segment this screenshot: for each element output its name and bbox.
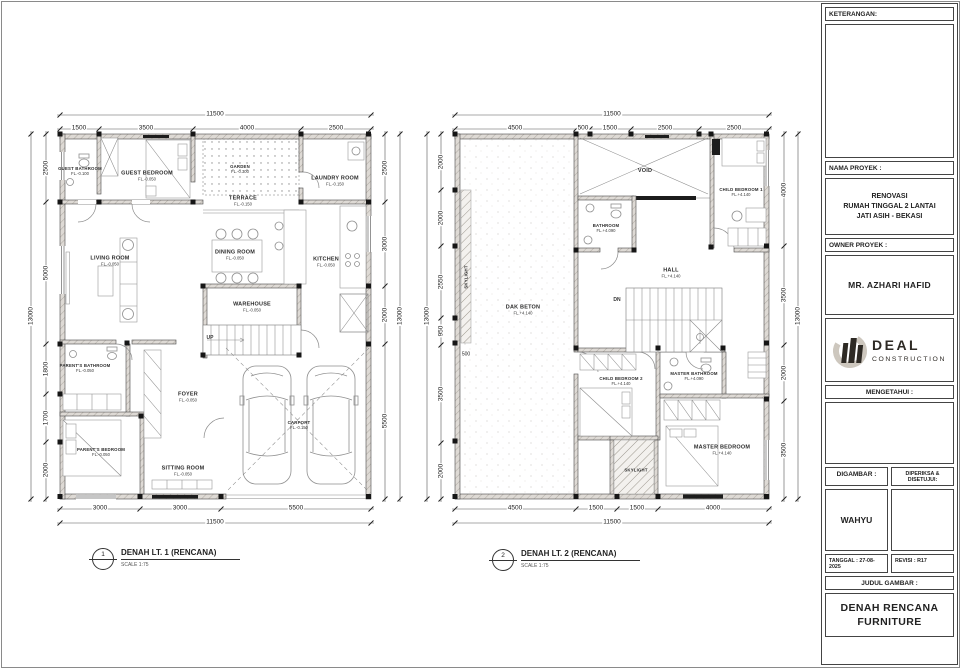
f2-dim-right-1: 3500 (781, 287, 788, 303)
room-carport: CARPORTFL.-0.150 (288, 420, 311, 430)
judul-line-1: DENAH RENCANA (841, 601, 939, 615)
f1-dim-bottom-2: 5500 (288, 505, 304, 512)
f2-dim-top-4: 2500 (726, 125, 742, 132)
floor2-caption: 2 DENAH LT. 2 (RENCANA) SCALE 1:75 (492, 549, 640, 571)
f2-dim-bottom-3: 4000 (705, 505, 721, 512)
project-line-2: RUMAH TINGGAL 2 LANTAI (843, 202, 935, 212)
garden-texture (203, 139, 299, 195)
floor1-caption-title: DENAH LT. 1 (RENCANA) (121, 548, 240, 560)
room-master-bathroom: MASTER BATHROOMFL.+4.090 (670, 371, 717, 381)
f2-dim-left-0: 2000 (438, 154, 445, 170)
f1-dim-right-2: 2000 (382, 307, 389, 323)
f2-dim-bottom-total: 11500 (602, 519, 622, 526)
f2-dim-left-4: 3500 (438, 386, 445, 402)
judul-gambar-header: JUDUL GAMBAR : (825, 576, 954, 590)
room-guest-bedroom: GUEST BEDROOMFL.-0.050 (121, 171, 173, 182)
mengetahui-box (825, 402, 954, 464)
room-parents-bathroom: PARENT'S BATHROOMFL.-0.050 (60, 363, 111, 373)
room-void: VOID (638, 168, 652, 174)
drawing-sheet: 11500 1500 3500 4000 2500 13000 2500 500… (0, 0, 961, 669)
titleblock: KETERANGAN: NAMA PROYEK : RENOVASI RUMAH… (821, 3, 958, 665)
f2-dim-left-3: 950 (438, 325, 445, 338)
f2-dim-top-2: 1500 (602, 125, 618, 132)
revisi-cell: REVISI : R17 (891, 554, 954, 573)
keterangan-header: KETERANGAN: (825, 7, 954, 21)
f2-dim-inset: 500 (461, 352, 471, 359)
f2-dim-right-total: 13000 (795, 306, 802, 326)
owner-box: MR. AZHARI HAFID (825, 255, 954, 315)
room-dining: DINING ROOMFL.-0.050 (215, 250, 255, 261)
f1-dim-bottom-0: 3000 (92, 505, 108, 512)
room-kitchen: KITCHENFL.-0.050 (313, 257, 339, 268)
floor2-void (580, 138, 708, 194)
floor2-plan (425, 113, 801, 526)
f2-dim-bottom-1: 1500 (588, 505, 604, 512)
f1-dim-left-2: 1800 (43, 361, 50, 377)
diperiksa-box (891, 489, 954, 551)
f1-dim-top-0: 1500 (71, 125, 87, 132)
room-skylight-strip: SKYLIGHT (464, 265, 469, 288)
floor2-stairs (626, 288, 722, 352)
owner-name: MR. AZHARI HAFID (848, 280, 931, 290)
room-child-bedroom-1: CHILD BEDROOM 1FL.+4.140 (719, 187, 762, 197)
floor1-caption-scale: SCALE 1:75 (121, 562, 240, 568)
project-line-1: RENOVASI (871, 192, 907, 202)
f2-dim-top-1: 500 (577, 125, 590, 132)
diperiksa-header: DIPERIKSA & DISETUJUI: (891, 467, 954, 486)
floor1-caption: 1 DENAH LT. 1 (RENCANA) SCALE 1:75 (92, 548, 240, 570)
owner-header: OWNER PROYEK : (825, 238, 954, 252)
judul-gambar-box: DENAH RENCANA FURNITURE (825, 593, 954, 637)
f2-dim-right-3: 3500 (781, 442, 788, 458)
logo-box: DEAL CONSTRUCTION (825, 318, 954, 382)
digambar-value: WAHYU (841, 515, 873, 525)
room-master-bedroom: MASTER BEDROOMFL.+4.140 (694, 445, 750, 456)
tanggal-cell: TANGGAL : 27-08-2025 (825, 554, 888, 573)
f2-dim-right-0: 4000 (781, 182, 788, 198)
f1-dim-top-2: 4000 (239, 125, 255, 132)
project-line-3: JATI ASIH - BEKASI (857, 212, 923, 222)
room-bathroom: BATHROOMFL.+4.090 (593, 223, 620, 233)
f1-dim-right-total: 13000 (397, 306, 404, 326)
project-name-box: RENOVASI RUMAH TINGGAL 2 LANTAI JATI ASI… (825, 178, 954, 235)
f1-dim-right-3: 5500 (382, 413, 389, 429)
room-laundry: LAUNDRY ROOMFL.-0.150 (311, 176, 359, 187)
f1-dim-top-1: 3500 (138, 125, 154, 132)
floor2-caption-scale: SCALE 1:75 (521, 563, 640, 569)
f1-dim-right-0: 2500 (382, 160, 389, 176)
f2-dim-left-total: 13000 (424, 306, 431, 326)
f1-dim-top-3: 2500 (328, 125, 344, 132)
room-warehouse: WAREHOUSEFL.-0.050 (233, 302, 271, 313)
room-parents-bedroom: PARENT'S BEDROOMFL.-0.050 (77, 447, 125, 457)
room-foyer: FOYERFL.-0.050 (178, 392, 198, 403)
f1-dim-bottom-1: 3000 (172, 505, 188, 512)
deal-construction-logo: DEAL CONSTRUCTION (828, 327, 952, 373)
car-1 (240, 366, 294, 484)
room-garden: GARDENFL.-0.300 (230, 164, 250, 174)
f1-dim-left-1: 5000 (43, 265, 50, 281)
keterangan-box (825, 24, 954, 158)
digambar-box: WAHYU (825, 489, 888, 551)
car-2 (304, 366, 358, 484)
room-dak-beton: DAK BETONFL.+4.140 (506, 305, 540, 316)
f2-dim-left-1: 2000 (438, 210, 445, 226)
room-sitting: SITTING ROOMFL.-0.050 (162, 466, 205, 477)
f2-dim-top-total: 11500 (602, 111, 622, 118)
room-child-bedroom-2: CHILD BEDROOM 2FL.+4.140 (599, 376, 642, 386)
f2-dim-bottom-0: 4500 (507, 505, 523, 512)
nama-proyek-header: NAMA PROYEK : (825, 161, 954, 175)
f1-dim-left-4: 2000 (43, 462, 50, 478)
f2-stair-label: DN (613, 297, 620, 303)
f1-dim-right-1: 3000 (382, 236, 389, 252)
f2-dim-right-2: 2000 (781, 365, 788, 381)
room-hall: HALLFL.+4.140 (662, 268, 681, 279)
room-skylight: SKYLIGHT (624, 468, 647, 473)
f2-dim-bottom-2: 1500 (629, 505, 645, 512)
f1-dim-top-total: 11500 (205, 111, 225, 118)
f1-dim-left-3: 1700 (43, 410, 50, 426)
logo-sub: CONSTRUCTION (872, 356, 946, 363)
room-terrace: TERRACEFL.-0.150 (229, 196, 257, 207)
logo-name: DEAL (872, 337, 920, 353)
room-guest-bathroom: GUEST BATHROOMFL.-0.100 (58, 166, 102, 176)
f1-stair-label: UP (207, 335, 214, 341)
f1-dim-left-total: 13000 (28, 306, 35, 326)
dak-beton-texture (462, 139, 574, 494)
f2-dim-top-3: 2500 (657, 125, 673, 132)
mengetahui-header: MENGETAHUI : (825, 385, 954, 399)
floor2-caption-title: DENAH LT. 2 (RENCANA) (521, 549, 640, 561)
floor1-caption-number: 1 (92, 548, 114, 570)
digambar-header: DIGAMBAR : (825, 467, 888, 486)
f2-dim-left-5: 2000 (438, 463, 445, 479)
judul-line-2: FURNITURE (857, 615, 921, 629)
floor1-stairs (203, 325, 301, 355)
floor2-caption-number: 2 (492, 549, 514, 571)
f1-dim-bottom-total: 11500 (205, 519, 225, 526)
f1-dim-left-0: 2500 (43, 160, 50, 176)
f2-dim-top-0: 4500 (507, 125, 523, 132)
room-living: LIVING ROOMFL.-0.050 (90, 256, 129, 267)
f2-dim-left-2: 2550 (438, 274, 445, 290)
